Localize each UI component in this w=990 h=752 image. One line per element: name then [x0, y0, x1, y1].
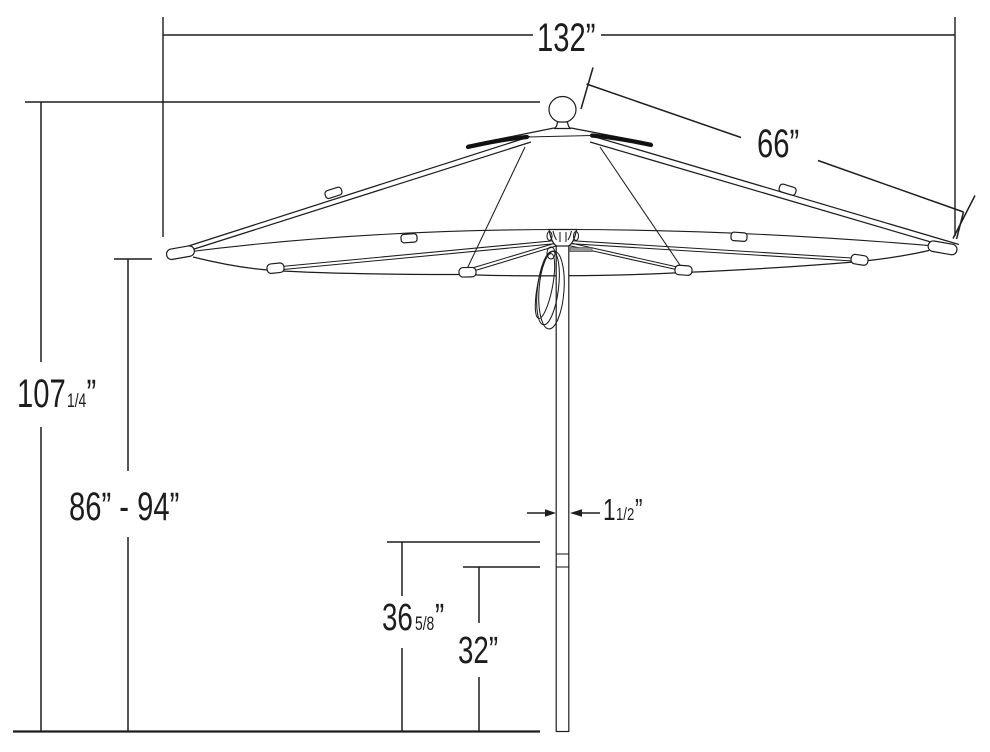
canopy-seam-front-left	[466, 147, 525, 271]
pole-diameter-whole: 1	[603, 491, 616, 526]
dimension-rib-length: 66”	[581, 68, 975, 240]
vent-flap-right	[592, 136, 651, 146]
rib-strut	[276, 241, 556, 268]
overall-height-fraction: 1/4	[67, 390, 86, 412]
back-rib-pocket-right	[731, 232, 748, 242]
umbrella-dimension-diagram: 132” 66” 107 1/4 ” 86” - 94” 36 5/8 ”	[0, 0, 990, 752]
canopy-width-label: 132”	[537, 16, 595, 61]
pole-diameter-unit: ”	[635, 491, 643, 526]
edge-rib-pocket-right	[778, 183, 797, 196]
vent-flap-middle	[527, 136, 592, 138]
diagram-canvas: 132” 66” 107 1/4 ” 86” - 94” 36 5/8 ”	[0, 0, 990, 752]
pole-pin	[570, 248, 592, 252]
canopy-edge-left-top	[176, 137, 530, 251]
rib-pocket-left-tip	[166, 245, 195, 260]
lower-pole-height-unit: ”	[435, 597, 444, 639]
rib-pocket	[267, 263, 285, 274]
left-arrowhead	[545, 509, 556, 517]
canopy-edge-left-lower	[180, 142, 531, 254]
finial-ball	[549, 97, 576, 123]
rib-pocket	[675, 265, 693, 276]
finial-neck	[554, 122, 571, 129]
end-arrow-stroke	[957, 212, 964, 239]
dimension-pole-diameter: 1 1/2 ”	[527, 491, 643, 526]
rib-pocket	[850, 254, 868, 266]
end-tick	[953, 196, 975, 239]
start-tick	[581, 68, 593, 110]
dimension-clearance-range: 86” - 94”	[69, 259, 179, 731]
dim-line-upper	[587, 84, 742, 138]
overall-height-whole: 107	[17, 372, 66, 417]
lower-pole-height-fraction: 5/8	[415, 613, 434, 635]
clearance-range-label: 86” - 94”	[69, 485, 179, 530]
umbrella-drawing	[166, 97, 959, 732]
lower-pole-height-whole: 36	[382, 597, 413, 639]
pole-diameter-fraction: 1/2	[616, 505, 634, 524]
back-rib-pocket-left	[401, 233, 418, 243]
rib-strut	[568, 241, 860, 259]
base-pole-height-label: 32”	[458, 630, 498, 672]
overall-height-unit: ”	[87, 372, 97, 417]
dim-line-lower	[818, 161, 964, 213]
right-arrowhead	[570, 509, 582, 517]
rib-pocket	[459, 267, 476, 277]
rib-strut	[566, 242, 684, 269]
rib-strut	[467, 245, 561, 274]
rib-length-label: 66”	[757, 122, 799, 167]
dimension-base-pole-height: 32”	[458, 567, 540, 731]
rib-strut	[278, 244, 557, 271]
